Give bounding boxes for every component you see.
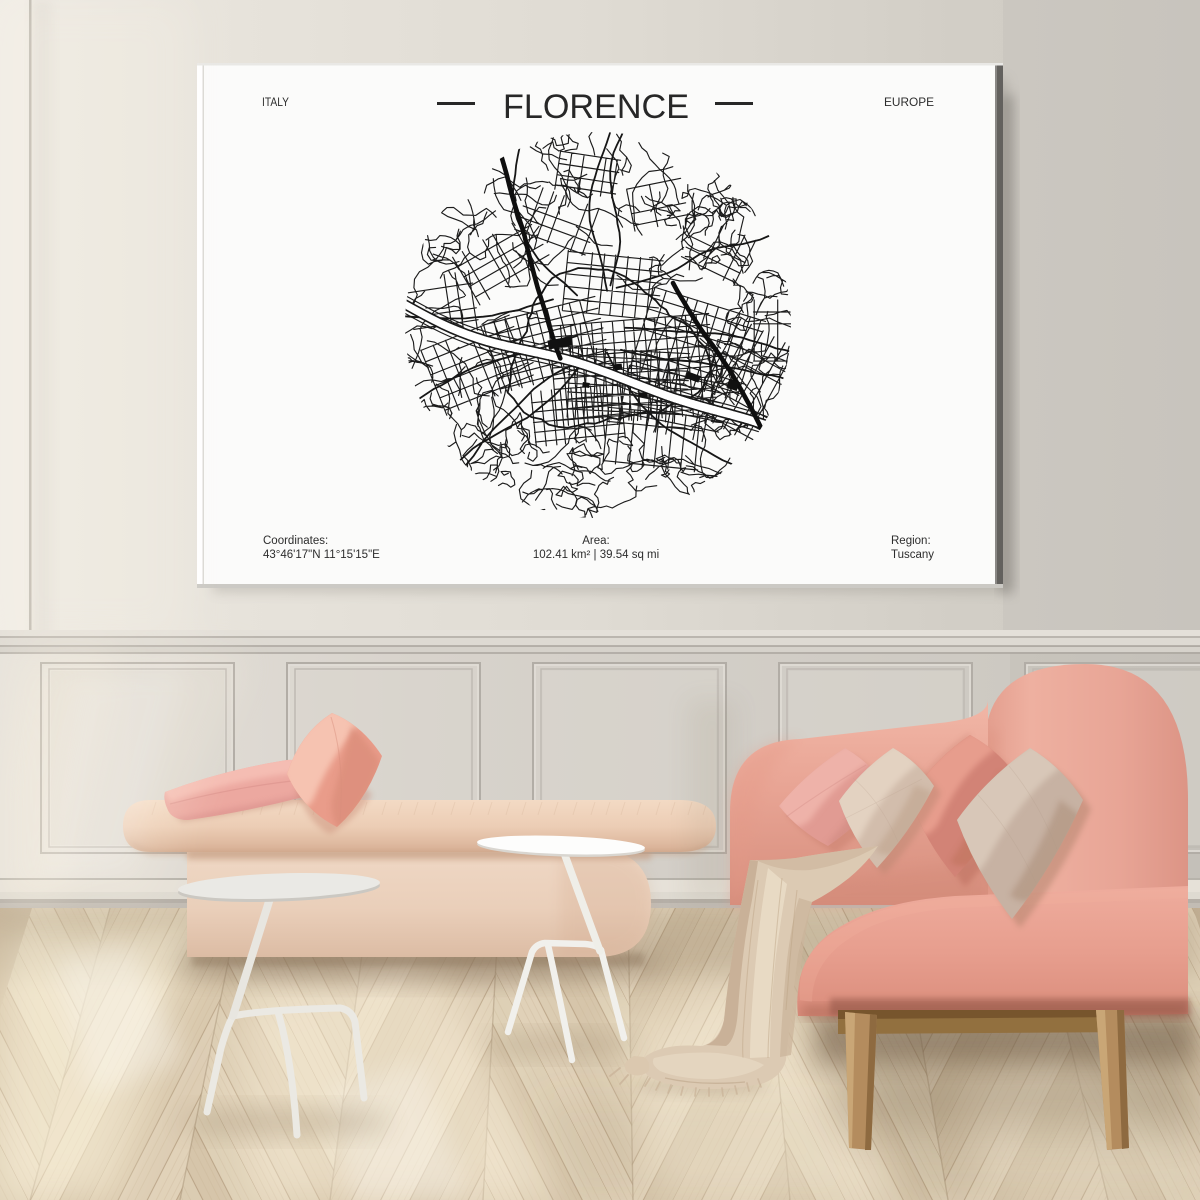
svg-text:ITALY: ITALY — [262, 95, 289, 109]
svg-text:Coordinates:: Coordinates: — [263, 535, 328, 547]
svg-text:FLORENCE: FLORENCE — [503, 88, 689, 126]
svg-text:102.41 km² | 39.54 sq mi: 102.41 km² | 39.54 sq mi — [533, 549, 659, 561]
svg-text:Area:: Area: — [582, 535, 610, 547]
svg-text:Tuscany: Tuscany — [891, 549, 934, 561]
svg-text:43°46'17"N 11°15'15"E: 43°46'17"N 11°15'15"E — [263, 549, 380, 561]
svg-text:Region:: Region: — [891, 535, 931, 547]
svg-text:EUROPE: EUROPE — [884, 95, 934, 109]
